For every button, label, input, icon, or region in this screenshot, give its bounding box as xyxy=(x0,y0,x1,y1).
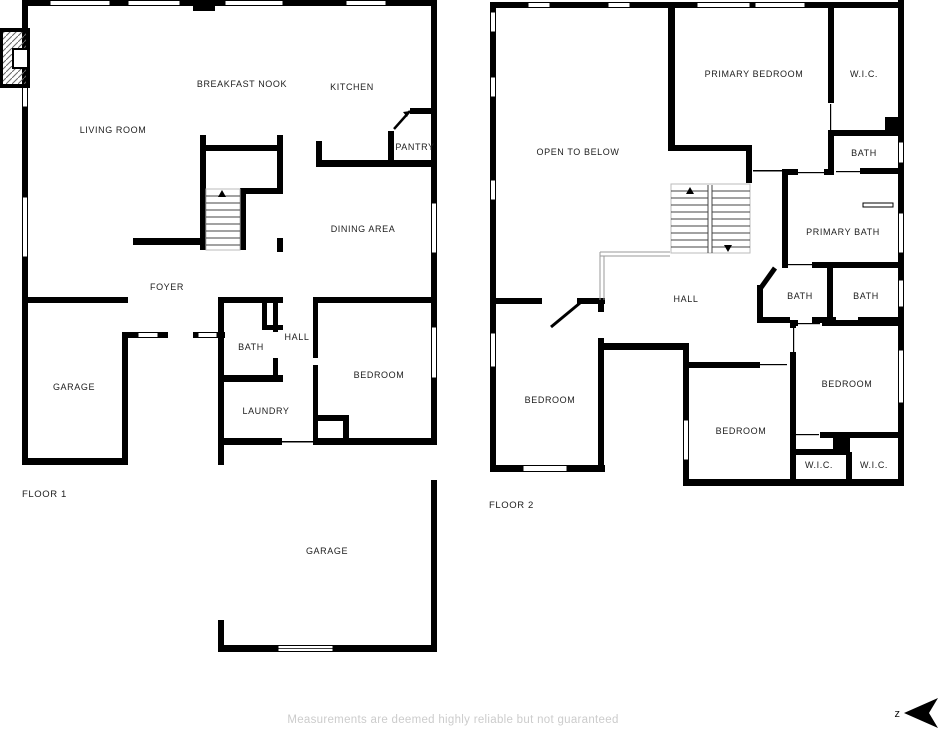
floor2-title: FLOOR 2 xyxy=(489,500,534,511)
room-label-foyer: FOYER xyxy=(150,282,184,292)
room-label-laundry: LAUNDRY xyxy=(242,406,289,416)
room-label-garage-bottom: GARAGE xyxy=(306,546,348,556)
room-label-wic-bottom-left: W.I.C. xyxy=(805,460,833,470)
floor2-stairs xyxy=(671,184,750,253)
measurement-disclaimer: Measurements are deemed highly reliable … xyxy=(287,714,618,726)
floor2-interior-walls xyxy=(490,2,904,485)
room-label-wic-bottom-right: W.I.C. xyxy=(860,460,888,470)
stairs-up-arrow xyxy=(218,190,226,197)
room-label-bedroom-right: BEDROOM xyxy=(822,379,873,389)
room-label-bath-right: BATH xyxy=(853,291,879,301)
open-to-below-railing xyxy=(600,252,670,300)
room-label-hall-f2: HALL xyxy=(674,294,699,304)
compass: z xyxy=(895,698,939,728)
room-label-bedroom-f1: BEDROOM xyxy=(354,370,405,380)
floor2-plan xyxy=(490,0,904,486)
room-label-pantry: PANTRY xyxy=(395,142,434,152)
bedroom-door-leaf xyxy=(551,303,580,327)
floorplan-page: BREAKFAST NOOK KITCHEN LIVING ROOM PANTR… xyxy=(0,0,941,729)
room-label-living-room: LIVING ROOM xyxy=(80,125,147,135)
room-label-wic-top: W.I.C. xyxy=(850,69,878,79)
room-label-open-to-below: OPEN TO BELOW xyxy=(537,147,620,157)
floor1-plan xyxy=(1,0,437,652)
room-label-primary-bedroom: PRIMARY BEDROOM xyxy=(705,69,804,79)
room-label-breakfast-nook: BREAKFAST NOOK xyxy=(197,79,287,89)
room-label-bath-f1: BATH xyxy=(238,342,264,352)
room-label-bath-top: BATH xyxy=(851,148,877,158)
room-label-kitchen: KITCHEN xyxy=(330,82,374,92)
room-label-dining-area: DINING AREA xyxy=(331,224,396,234)
room-label-bedroom-left: BEDROOM xyxy=(525,395,576,405)
vanity-counter xyxy=(863,203,893,207)
fireplace xyxy=(1,30,28,86)
floor1-interior-walls xyxy=(22,108,437,652)
room-label-hall-f1: HALL xyxy=(285,332,310,342)
floorplan-canvas: BREAKFAST NOOK KITCHEN LIVING ROOM PANTR… xyxy=(0,0,941,729)
north-arrow-icon xyxy=(904,698,938,728)
floor1-exterior-walls xyxy=(22,0,437,652)
compass-label: z xyxy=(895,708,901,720)
room-label-bath-left: BATH xyxy=(787,291,813,301)
floor1-title: FLOOR 1 xyxy=(22,489,67,500)
stairs-down-arrow xyxy=(724,245,732,252)
floor1-stairs xyxy=(206,189,240,250)
floor2-exterior-walls xyxy=(490,0,904,486)
room-label-garage-left: GARAGE xyxy=(53,382,95,392)
room-label-primary-bath: PRIMARY BATH xyxy=(806,227,880,237)
room-label-bedroom-middle: BEDROOM xyxy=(716,426,767,436)
